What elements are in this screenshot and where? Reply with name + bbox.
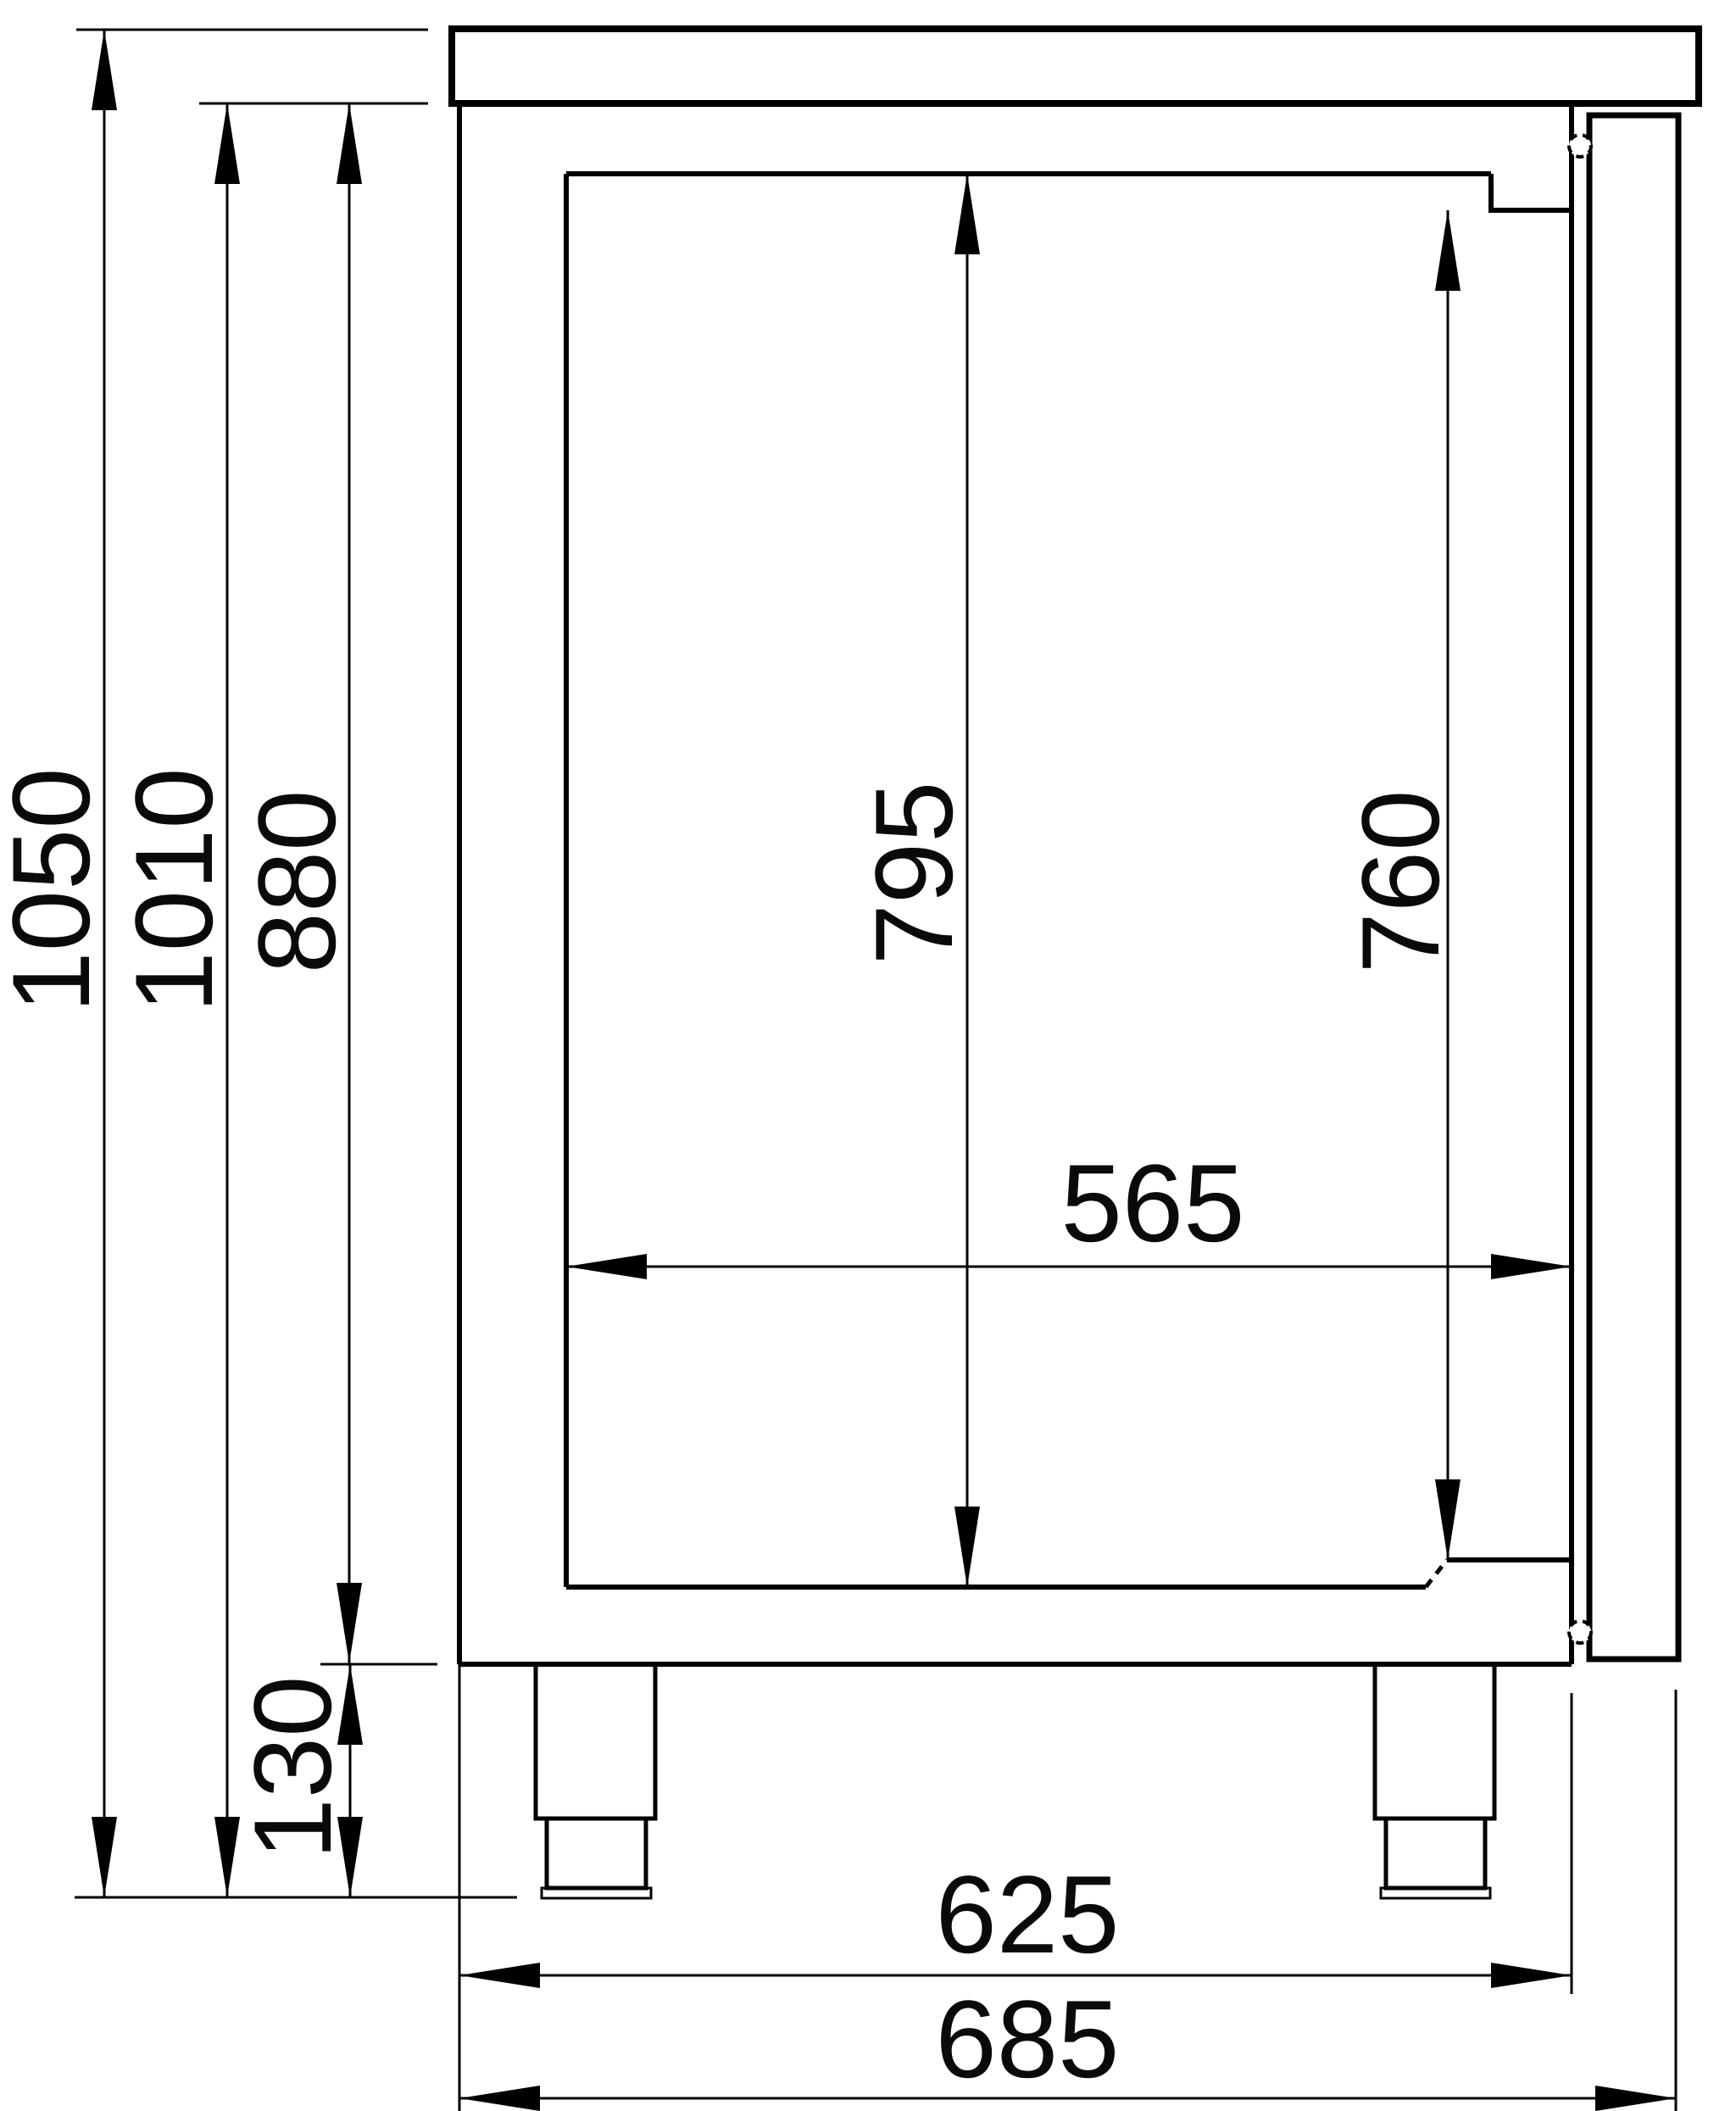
dim-inner-rear-height: 760 bbox=[1338, 210, 1462, 1560]
liner-bottom-chamfer bbox=[1426, 1560, 1447, 1587]
door bbox=[1569, 115, 1678, 1659]
dim-label-inner-depth: 565 bbox=[1061, 1141, 1245, 1265]
arrowhead-right bbox=[1595, 2086, 1676, 2111]
dim-label-overall-depth: 685 bbox=[936, 1977, 1120, 2101]
dim-overall-height: 1050 bbox=[0, 30, 117, 1897]
arrowhead-up bbox=[92, 30, 117, 110]
dim-height-under-top: 1010 bbox=[112, 103, 240, 1897]
right-foot-pad bbox=[1386, 1819, 1485, 1888]
left-foot-pad bbox=[547, 1819, 646, 1888]
left-foot-leg bbox=[536, 1664, 655, 1819]
dim-label-overall-height: 1050 bbox=[0, 767, 113, 1012]
arrowhead-down bbox=[92, 1817, 117, 1897]
arrowhead-down bbox=[337, 1583, 362, 1663]
arrowhead-up bbox=[954, 174, 980, 254]
arrowhead-left bbox=[459, 2086, 540, 2111]
arrowhead-right bbox=[1491, 1963, 1572, 1988]
right-foot-leg bbox=[1375, 1664, 1494, 1819]
liner-top-rear-step bbox=[1491, 174, 1572, 210]
arrowhead-left bbox=[459, 1963, 540, 1988]
arrowhead-up bbox=[337, 103, 362, 184]
hinge-pin-top bbox=[1569, 135, 1591, 157]
arrowhead-down bbox=[1435, 1479, 1461, 1560]
dim-body-height: 880 bbox=[235, 103, 362, 1663]
drawing-sheet: 1050 1010 880 130 795 760 bbox=[0, 0, 1736, 2111]
dim-inner-front-height: 795 bbox=[852, 174, 980, 1587]
arrowhead-up bbox=[214, 103, 240, 184]
dim-label-inner-rear-height: 760 bbox=[1338, 790, 1462, 974]
dim-body-depth: 625 bbox=[459, 1852, 1572, 1988]
arrowhead-up bbox=[1435, 210, 1461, 291]
technical-drawing: 1050 1010 880 130 795 760 bbox=[0, 0, 1736, 2111]
dim-label-body-height: 880 bbox=[235, 790, 359, 974]
dim-label-foot-height: 130 bbox=[231, 1676, 354, 1860]
dim-overall-depth: 685 bbox=[459, 1977, 1676, 2111]
arrowhead-right bbox=[1491, 1254, 1572, 1279]
arrowhead-left bbox=[566, 1254, 647, 1279]
dim-inner-depth: 565 bbox=[566, 1141, 1572, 1279]
worktop-outline bbox=[452, 29, 1699, 103]
hinge-pin-bottom bbox=[1569, 1621, 1591, 1643]
dim-foot-height: 130 bbox=[231, 1664, 363, 1897]
dim-label-height-under-top: 1010 bbox=[112, 767, 236, 1012]
dim-label-inner-front-height: 795 bbox=[852, 782, 976, 966]
arrowhead-down bbox=[954, 1507, 980, 1587]
door-outline bbox=[1589, 115, 1678, 1659]
dim-label-body-depth: 625 bbox=[936, 1852, 1120, 1976]
worktop bbox=[452, 29, 1699, 103]
